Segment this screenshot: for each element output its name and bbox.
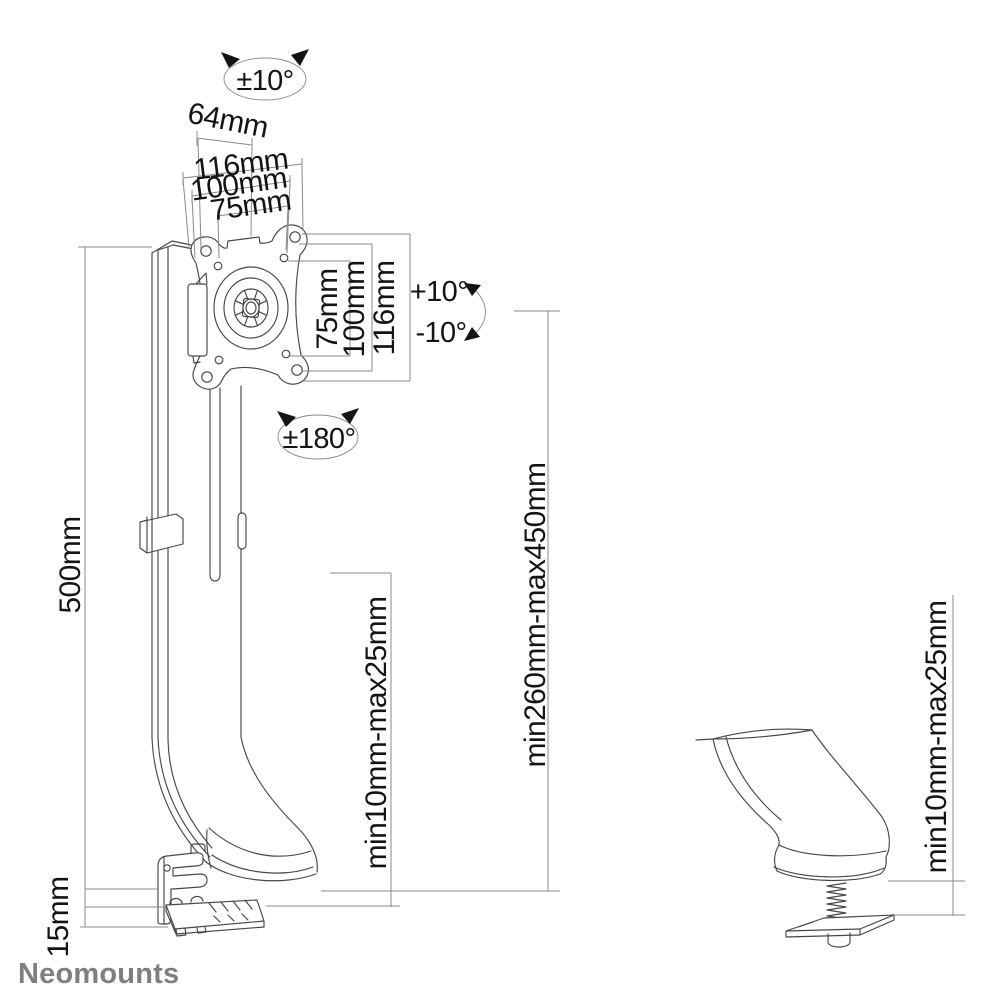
vesa-plate <box>188 225 308 389</box>
label-pole-height: 500mm <box>54 516 87 613</box>
label-height-range: min260mm-max450mm <box>519 463 552 768</box>
monitor-mount-diagram: ±10° 64mm 116mm 100mm 75mm 75mm 100mm 11… <box>0 0 1004 1004</box>
hinge-bracket <box>188 273 207 363</box>
grommet-plate <box>786 915 894 947</box>
label-tilt-up: +10° <box>410 276 468 308</box>
grommet-view <box>696 729 894 947</box>
neomounts-logo: Neomounts <box>18 958 179 991</box>
label-tilt-down: -10° <box>415 317 466 349</box>
label-rotation-top: ±10° <box>236 65 293 97</box>
rotation-arrow-right-icon <box>291 49 309 66</box>
label-offset-64: 64mm <box>185 97 271 145</box>
grommet-bolt-thread <box>827 883 846 919</box>
label-rotation-vesa: ±180° <box>283 423 356 455</box>
label-plate-depth: 15mm <box>42 877 75 958</box>
label-grommet-thickness: min10mm-max25mm <box>920 601 953 874</box>
clamp-plate <box>166 896 264 936</box>
vesa-rotation-arrow-right-icon <box>341 408 359 424</box>
tilt-arc <box>472 287 486 337</box>
label-height-116: 116mm <box>368 261 401 356</box>
diagram-page: ±10° 64mm 116mm 100mm 75mm 75mm 100mm 11… <box>0 0 1004 1004</box>
label-height-100: 100mm <box>338 260 371 357</box>
label-clamp-thickness: min10mm-max25mm <box>360 597 393 870</box>
pole-slot-cap <box>238 513 246 549</box>
